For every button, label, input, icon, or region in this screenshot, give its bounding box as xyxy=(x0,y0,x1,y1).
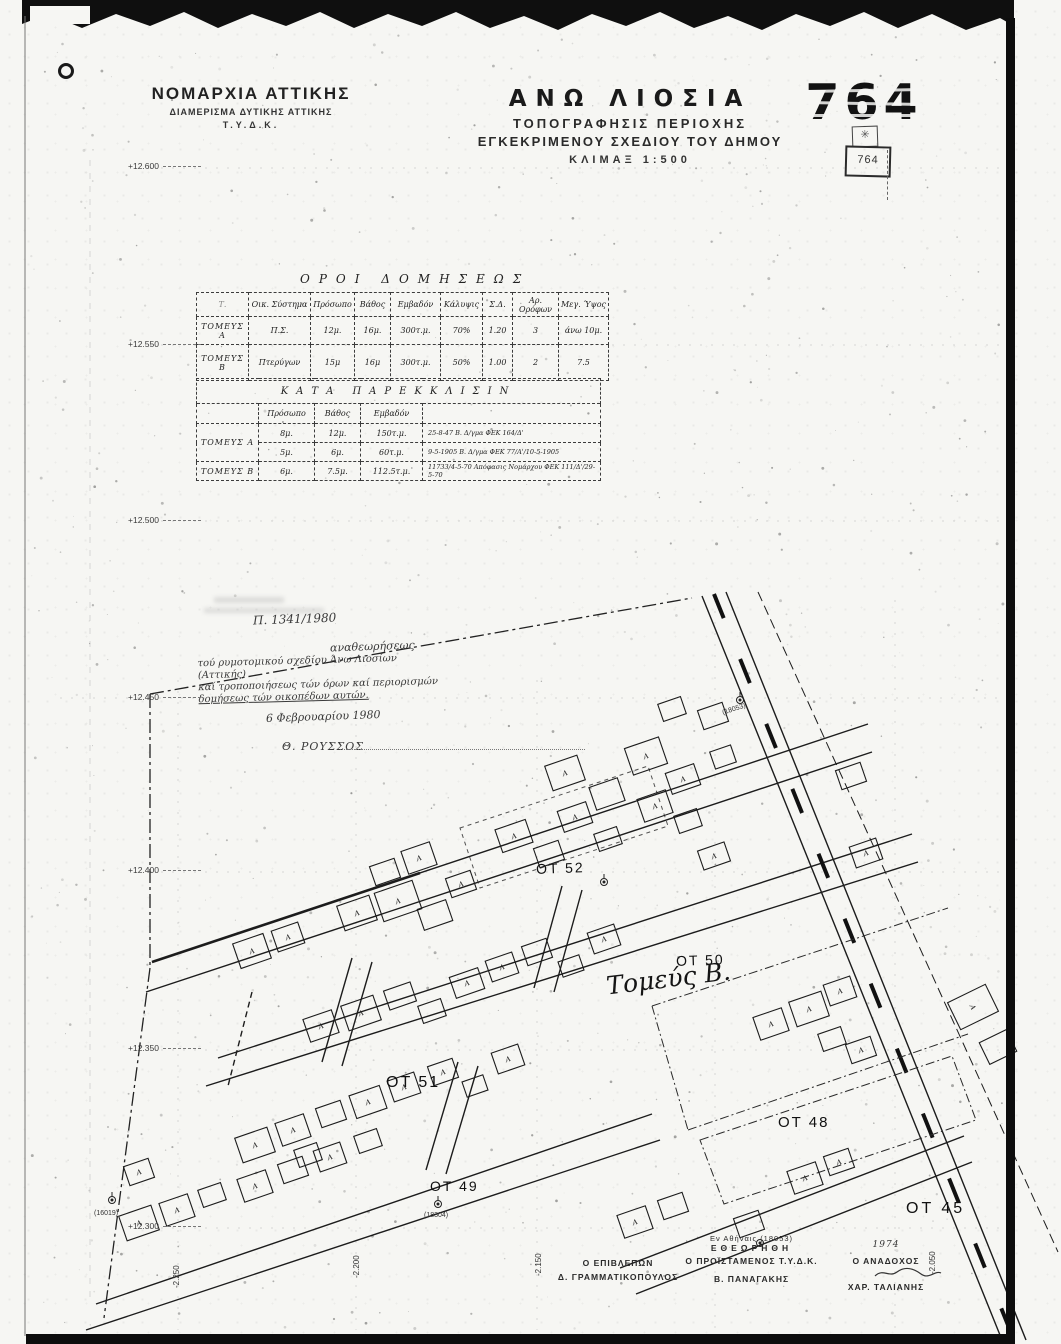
building-footprint: Α xyxy=(237,1170,273,1202)
elevation-marker: +12.300 xyxy=(128,1221,238,1231)
contractor-title: Ο ΑΝΑΔΟΧΟΣ xyxy=(826,1256,946,1266)
elevation-label: +12.500 xyxy=(128,515,159,525)
building-footprint: Α xyxy=(235,1127,276,1163)
row-label: ΤΟΜΕΥΣ Β xyxy=(197,345,249,381)
number-stamp: 764 xyxy=(845,145,892,177)
building-footprint: Α xyxy=(823,976,857,1006)
benchmark-label: (16019) xyxy=(94,1210,118,1217)
derogation-title: ΚΑΤΑ ΠΑΡΕΚΚΛΙΣΙΝ xyxy=(197,379,601,404)
building-footprint: Α xyxy=(698,842,731,870)
block-label-ot49: ΟΤ 49 xyxy=(430,1178,479,1194)
cell: 12μ. xyxy=(311,317,355,345)
col-header: Οικ. Σύστημα xyxy=(249,293,311,317)
building-type-label: Α xyxy=(510,832,518,842)
cell: 1.00 xyxy=(483,345,513,381)
cell: 16μ. xyxy=(355,317,391,345)
agency-department: ΔΙΑΜΕΡΙΣΜΑ ΔΥΤΙΚΗΣ ΑΤΤΙΚΗΣ xyxy=(146,107,356,117)
table-row: ΤΟΜΕΥΣ Α 8μ. 12μ. 150τ.μ. 25-8-47 Β. Δ/γ… xyxy=(197,424,601,443)
building-type-label: Α xyxy=(857,1046,865,1056)
building-type-label: Α xyxy=(173,1206,181,1216)
approval-signature: Θ. ΡΟΥΣΣΟΣ xyxy=(282,740,364,753)
building-type-label: Α xyxy=(710,852,718,862)
col-header: Βάθος xyxy=(355,293,391,317)
building-type-label: Α xyxy=(631,1218,639,1228)
building-type-label: Α xyxy=(679,775,687,785)
building-footprint xyxy=(657,1192,688,1219)
building-footprint: Α xyxy=(271,922,305,952)
elevation-label: +12.600 xyxy=(128,161,159,171)
building-type-label: Α xyxy=(561,769,569,779)
col-header: Μεγ. Ύψος xyxy=(559,293,609,317)
place-ref: (18053) xyxy=(760,1234,793,1243)
building-type-label: Α xyxy=(284,933,292,943)
table-row: ΤΟΜΕΥΣ Β Πτερύγων 15μ 16μ 300τ.μ. 50% 1.… xyxy=(197,345,609,381)
cell: άνω 10μ. xyxy=(559,317,609,345)
building-footprint xyxy=(835,762,866,789)
cell: 15μ xyxy=(311,345,355,381)
derogation-table-wrap: ΚΑΤΑ ΠΑΡΕΚΚΛΙΣΙΝ Πρόσωπο Βάθος Εμβαδόν Τ… xyxy=(196,378,601,481)
elevation-label: +12.300 xyxy=(128,1221,159,1231)
cell: 112.5τ.μ. xyxy=(361,462,423,481)
review-signature-block: Εν Αθήναις (18053) ΕΘΕΩΡΗΘΗ Ο ΠΡΟΪΣΤΑΜΕΝ… xyxy=(664,1234,839,1284)
col-header: Πρόσωπο xyxy=(259,404,315,424)
contractor-signature-block: 1974 Ο ΑΝΑΔΟΧΟΣ ΧΑΡ. ΤΑΛΙΑΝΗΣ xyxy=(826,1240,946,1292)
table-row: ΤΟΜΕΥΣ Α Π.Σ. 12μ. 16μ. 300τ.μ. 70% 1.20… xyxy=(197,317,609,345)
building-footprint xyxy=(315,1100,346,1127)
building-footprint: Α xyxy=(233,933,272,968)
building-footprint: Α xyxy=(948,984,999,1029)
block-label-ot48: ΟΤ 48 xyxy=(778,1114,829,1131)
building-type-label: Α xyxy=(767,1020,775,1030)
building-footprint xyxy=(198,1183,227,1208)
contractor-name: ΧΑΡ. ΤΑΛΙΑΝΗΣ xyxy=(826,1282,946,1292)
building-footprint: Α xyxy=(337,895,378,931)
benchmark-label: (18304) xyxy=(424,1212,448,1219)
elevation-marker: +12.500 xyxy=(128,515,238,525)
col-header xyxy=(197,404,259,424)
building-footprint: Α xyxy=(485,952,519,982)
grid-coordinate: -2.250 xyxy=(172,1265,181,1288)
topographic-map-canvas: ΑΑΑΑΑΑΑΑΑΑΑΑΑΑΑΑΑΑΑΑΑΑΑΑΑΑΑΑΑΑΑΑΑΑΑΑΑΑ xyxy=(0,0,1061,1344)
cell: 7.5μ. xyxy=(315,462,361,481)
elevation-label: +12.450 xyxy=(128,692,159,702)
building-footprint: Α xyxy=(617,1206,653,1238)
building-footprint: Α xyxy=(624,737,667,775)
map-scale: ΚΛΙΜΑΞ 1:500 xyxy=(455,154,805,166)
building-footprint xyxy=(558,955,584,977)
building-type-label: Α xyxy=(251,1182,259,1192)
benchmark-icon xyxy=(435,1196,442,1208)
building-footprint: Α xyxy=(449,968,485,999)
row-label: ΤΟΜΕΥΣ Α xyxy=(197,424,259,462)
cell-note: 11733/4-5-70 Απόφασις Νομάρχου ΦΕΚ 111/Δ… xyxy=(423,462,601,481)
row-label: ΤΟΜΕΥΣ Β xyxy=(197,462,259,481)
block-label-ot52: ΟΤ 52 xyxy=(536,859,585,877)
col-header: Βάθος xyxy=(315,404,361,424)
col-header: Τ. xyxy=(197,293,249,317)
building-type-label: Α xyxy=(835,1158,843,1168)
building-type-label: Α xyxy=(498,963,506,973)
col-header: Σ.Δ. xyxy=(483,293,513,317)
approval-reference: Π. 1341/1980 xyxy=(253,611,337,628)
building-terms-table-wrap: Τ. Οικ. Σύστημα Πρόσωπο Βάθος Εμβαδόν Κά… xyxy=(196,292,609,381)
building-type-label: Α xyxy=(805,1005,813,1015)
building-type-label: Α xyxy=(642,752,650,762)
table-header-row: Πρόσωπο Βάθος Εμβαδόν xyxy=(197,404,601,424)
cell: 300τ.μ. xyxy=(391,317,441,345)
elevation-label: +12.400 xyxy=(128,865,159,875)
building-footprint xyxy=(658,697,687,722)
building-footprint: Α xyxy=(753,1008,789,1040)
title-block: ΑΝΩ ΛΙΟΣΙΑ ΤΟΠΟΓΡΑΦΗΣΙΣ ΠΕΡΙΟΧΗΣ ΕΓΚΕΚΡΙ… xyxy=(455,86,805,166)
building-footprints: ΑΑΑΑΑΑΑΑΑΑΑΑΑΑΑΑΑΑΑΑΑΑΑΑΑΑΑΑΑΑΑΑΑΑΑΑΑΑ xyxy=(119,697,1017,1241)
building-footprint: Α xyxy=(665,764,701,795)
agency-office: Τ.Υ.Δ.Κ. xyxy=(146,120,356,130)
head-name: Β. ΠΑΝΑΓΑΚΗΣ xyxy=(664,1274,839,1284)
cell: 6μ. xyxy=(259,462,315,481)
building-type-label: Α xyxy=(251,1141,259,1151)
building-type-label: Α xyxy=(836,987,844,997)
block-label-ot51: ΟΤ 51 xyxy=(386,1074,440,1092)
elevation-marker: +12.400 xyxy=(128,865,238,875)
building-footprint xyxy=(277,1156,308,1183)
elevation-label: +12.350 xyxy=(128,1043,159,1053)
building-type-label: Α xyxy=(326,1153,334,1163)
place: Εν Αθήναις xyxy=(710,1234,757,1243)
building-footprint: Α xyxy=(303,1010,339,1042)
building-type-label: Α xyxy=(651,802,659,812)
benchmark-icon xyxy=(601,874,608,886)
cell: 5μ. xyxy=(259,443,315,462)
block-label-ot45: ΟΤ 45 xyxy=(906,1200,965,1218)
scanned-map-sheet: ΑΑΑΑΑΑΑΑΑΑΑΑΑΑΑΑΑΑΑΑΑΑΑΑΑΑΑΑΑΑΑΑΑΑΑΑΑΑ Ν… xyxy=(0,0,1061,1344)
building-footprint xyxy=(418,999,447,1024)
building-type-label: Α xyxy=(801,1174,809,1184)
stamp-leader-line xyxy=(887,150,888,200)
building-type-label: Α xyxy=(457,880,465,890)
cell: 16μ xyxy=(355,345,391,381)
building-type-label: Α xyxy=(353,909,361,919)
cell: 1.20 xyxy=(483,317,513,345)
scan-noise xyxy=(30,34,1004,1330)
building-footprint xyxy=(710,745,737,769)
building-type-label: Α xyxy=(862,849,870,859)
cell: Π.Σ. xyxy=(249,317,311,345)
cell: 50% xyxy=(441,345,483,381)
cell: 70% xyxy=(441,317,483,345)
building-type-label: Α xyxy=(504,1055,512,1065)
building-footprint: Α xyxy=(545,755,586,791)
building-footprint xyxy=(818,1027,847,1052)
cell: 3 xyxy=(513,317,559,345)
scan-edges xyxy=(22,0,1015,1344)
col-header: Εμβαδόν xyxy=(361,404,423,424)
grid-coordinate: -2.200 xyxy=(352,1255,361,1278)
map-subtitle-2: ΕΓΚΕΚΡΙΜΕΝΟΥ ΣΧΕΔΙΟΥ ΤΟΥ ΔΗΜΟΥ xyxy=(455,134,805,149)
reviewed-label: ΕΘΕΩΡΗΘΗ xyxy=(664,1243,839,1253)
col-header xyxy=(423,404,601,424)
building-footprint: Α xyxy=(789,991,830,1027)
building-type-label: Α xyxy=(248,947,256,957)
cell: Πτερύγων xyxy=(249,345,311,381)
col-header: Πρόσωπο xyxy=(311,293,355,317)
contractor-signature-scrawl xyxy=(873,1266,943,1280)
elevation-marker: +12.550 xyxy=(128,339,238,349)
benchmark-icon xyxy=(737,692,744,704)
signature-dotted-line xyxy=(340,749,585,750)
sheet-number: 764 xyxy=(804,74,924,131)
building-footprint: Α xyxy=(587,924,621,954)
cell: 300τ.μ. xyxy=(391,345,441,381)
building-footprint: Α xyxy=(787,1162,823,1194)
building-type-label: Α xyxy=(600,935,608,945)
elevation-marker: +12.450 xyxy=(128,692,238,702)
building-terms-title: ΟΡΟΙ ΔΟΜΗΣΕΩΣ xyxy=(300,272,530,286)
derogation-table: ΚΑΤΑ ΠΑΡΕΚΚΛΙΣΙΝ Πρόσωπο Βάθος Εμβαδόν Τ… xyxy=(196,378,601,481)
building-type-label: Α xyxy=(463,979,471,989)
building-footprint: Α xyxy=(123,1158,154,1185)
stamp-emblem-icon: ✳ xyxy=(852,126,879,148)
agency-name: ΝΟΜΑΡΧΙΑ ΑΤΤΙΚΗΣ xyxy=(146,84,356,104)
cell: 12μ. xyxy=(315,424,361,443)
table-header-row: Τ. Οικ. Σύστημα Πρόσωπο Βάθος Εμβαδόν Κά… xyxy=(197,293,609,317)
cell: 150τ.μ. xyxy=(361,424,423,443)
building-type-label: Α xyxy=(394,897,402,907)
building-footprint xyxy=(417,900,453,931)
cell: 2 xyxy=(513,345,559,381)
cell: 8μ. xyxy=(259,424,315,443)
map-title: ΑΝΩ ΛΙΟΣΙΑ xyxy=(455,86,805,112)
building-type-label: Α xyxy=(967,1002,977,1011)
col-header: Κάλυψις xyxy=(441,293,483,317)
table-row: ΤΟΜΕΥΣ Β 6μ. 7.5μ. 112.5τ.μ. 11733/4-5-7… xyxy=(197,462,601,481)
building-type-label: Α xyxy=(415,854,423,864)
building-terms-table: Τ. Οικ. Σύστημα Πρόσωπο Βάθος Εμβαδόν Κά… xyxy=(196,292,609,381)
year: 1974 xyxy=(826,1240,946,1250)
map-subtitle-1: ΤΟΠΟΓΡΑΦΗΣΙΣ ΠΕΡΙΟΧΗΣ xyxy=(455,116,805,131)
building-type-label: Α xyxy=(289,1126,297,1136)
cell: 7.5 xyxy=(559,345,609,381)
survey-boundary xyxy=(104,598,692,1318)
scan-blob xyxy=(60,65,73,78)
cell: 60τ.μ. xyxy=(361,443,423,462)
building-type-label: Α xyxy=(135,1168,143,1178)
benchmark-icon xyxy=(109,1192,116,1204)
building-type-label: Α xyxy=(364,1098,372,1108)
col-header: Εμβαδόν xyxy=(391,293,441,317)
col-header: Αρ. Ορόφων xyxy=(513,293,559,317)
table-title-row: ΚΑΤΑ ΠΑΡΕΚΚΛΙΣΙΝ xyxy=(197,379,601,404)
elevation-marker: +12.350 xyxy=(128,1043,238,1053)
building-footprint: Α xyxy=(349,1085,387,1118)
cell-note: 9-5-1905 Β. Δ/γμα ΦΕΚ 77/Α'/10-5-1905 xyxy=(423,443,601,462)
cell-note: 25-8-47 Β. Δ/γμα ΦΕΚ 164/Δ' xyxy=(423,424,601,443)
avenue-centerline xyxy=(714,594,1014,1340)
building-footprint: Α xyxy=(275,1114,311,1146)
head-title: Ο ΠΡΟΪΣΤΑΜΕΝΟΣ Τ.Υ.Δ.Κ. xyxy=(664,1256,839,1266)
elevation-marker: +12.600 xyxy=(128,161,238,171)
cell: 6μ. xyxy=(315,443,361,462)
agency-block: ΝΟΜΑΡΧΙΑ ΑΤΤΙΚΗΣ ΔΙΑΜΕΡΙΣΜΑ ΔΥΤΙΚΗΣ ΑΤΤΙ… xyxy=(146,84,356,130)
building-footprint: Α xyxy=(495,819,533,852)
elevation-label: +12.550 xyxy=(128,339,159,349)
building-footprint: Α xyxy=(491,1044,525,1074)
building-footprint xyxy=(354,1129,383,1154)
place-line: Εν Αθήναις (18053) xyxy=(664,1234,839,1243)
